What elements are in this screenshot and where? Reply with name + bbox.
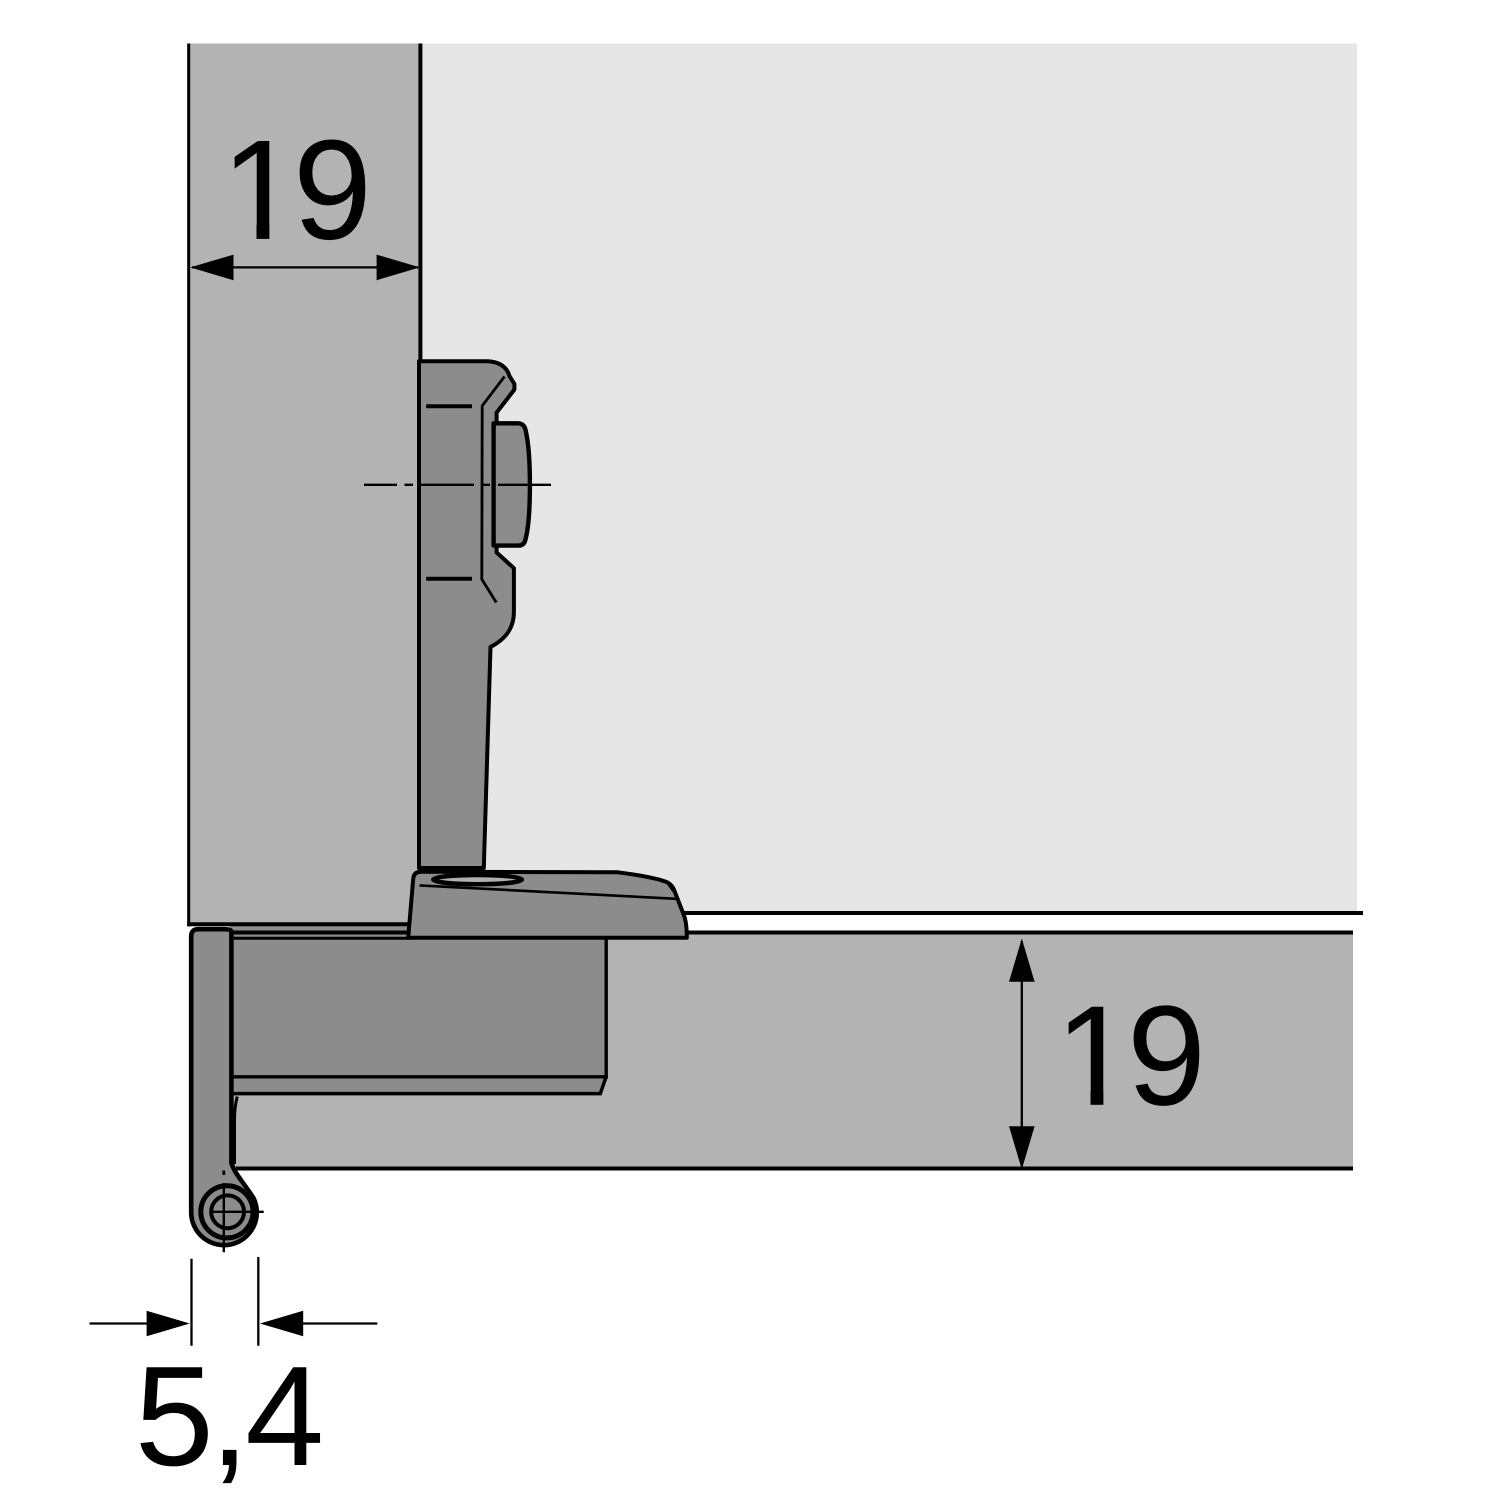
svg-text:5,4: 5,4	[135, 1337, 320, 1496]
svg-text:19: 19	[1055, 977, 1200, 1136]
svg-text:19: 19	[221, 111, 366, 270]
